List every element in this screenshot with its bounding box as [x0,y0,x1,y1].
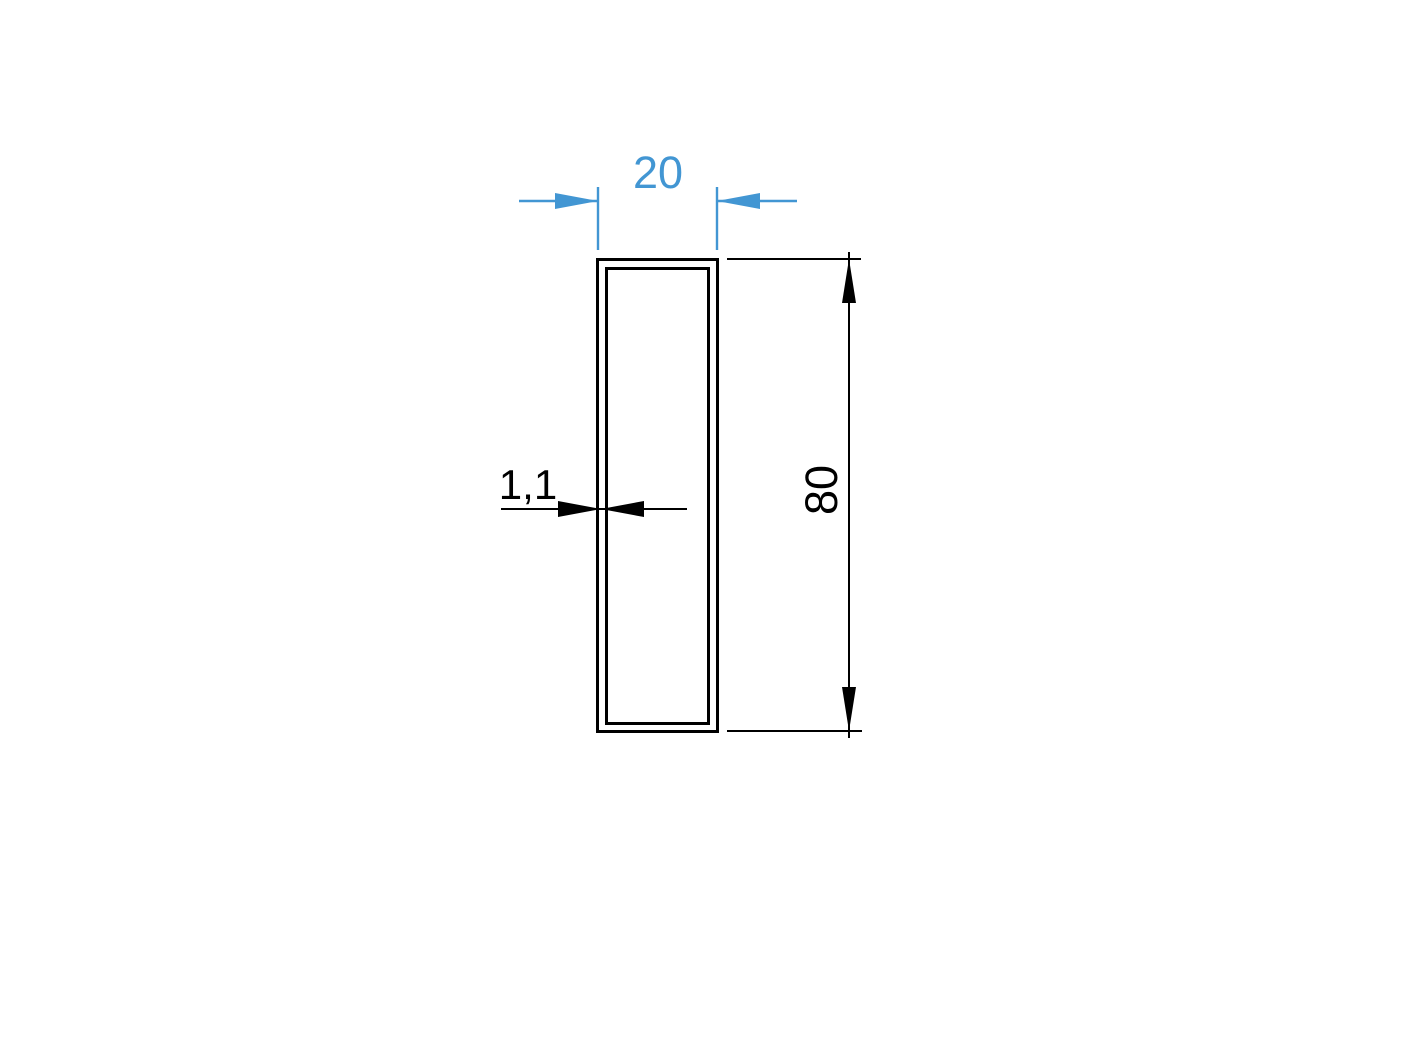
technical-drawing: 20 80 1,1 [0,0,1417,1062]
profile-inner-contour [607,269,709,724]
thickness-dim-arrowhead-left [558,501,601,517]
height-dim-label: 80 [796,465,847,515]
drawing-canvas: 20 80 1,1 [0,0,1417,1062]
width-dim-label: 20 [633,147,683,198]
height-dim-arrowhead-top [842,259,856,303]
width-dim-arrowhead-right [717,193,760,209]
profile-outer-contour [598,260,718,732]
width-dim-arrowhead-left [555,193,598,209]
thickness-dim-label: 1,1 [499,461,557,508]
height-dim-arrowhead-bottom [842,687,856,731]
